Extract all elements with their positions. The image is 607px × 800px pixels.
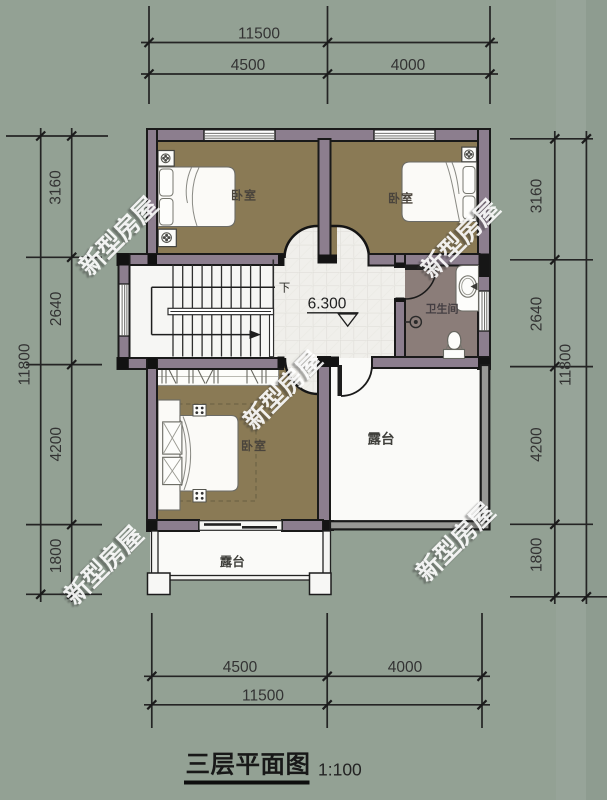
svg-text:4200: 4200: [529, 427, 546, 462]
svg-text:卧室: 卧室: [388, 191, 414, 206]
svg-text:11800: 11800: [558, 344, 575, 386]
svg-text:4000: 4000: [391, 57, 426, 74]
svg-text:3160: 3160: [48, 170, 65, 205]
svg-text:11500: 11500: [238, 26, 280, 43]
svg-text:1800: 1800: [48, 538, 65, 573]
svg-text:三层平面图: 三层平面图: [186, 752, 311, 779]
svg-text:4200: 4200: [48, 427, 65, 462]
svg-text:1800: 1800: [529, 537, 546, 572]
svg-text:2640: 2640: [48, 291, 65, 326]
svg-text:11800: 11800: [16, 343, 33, 385]
svg-text:4000: 4000: [388, 659, 423, 676]
svg-text:下: 下: [279, 283, 291, 295]
svg-text:露台: 露台: [368, 431, 395, 447]
svg-text:2640: 2640: [529, 296, 546, 331]
svg-text:露台: 露台: [220, 554, 245, 569]
svg-text:11500: 11500: [242, 687, 284, 704]
svg-text:1:100: 1:100: [318, 760, 362, 780]
svg-text:卧室: 卧室: [241, 438, 267, 453]
svg-text:卫生间: 卫生间: [426, 302, 459, 316]
svg-text:卧室: 卧室: [231, 188, 257, 203]
svg-text:4500: 4500: [223, 659, 258, 676]
svg-text:3160: 3160: [529, 178, 546, 213]
svg-text:4500: 4500: [231, 57, 266, 74]
svg-text:6.300: 6.300: [308, 296, 347, 313]
